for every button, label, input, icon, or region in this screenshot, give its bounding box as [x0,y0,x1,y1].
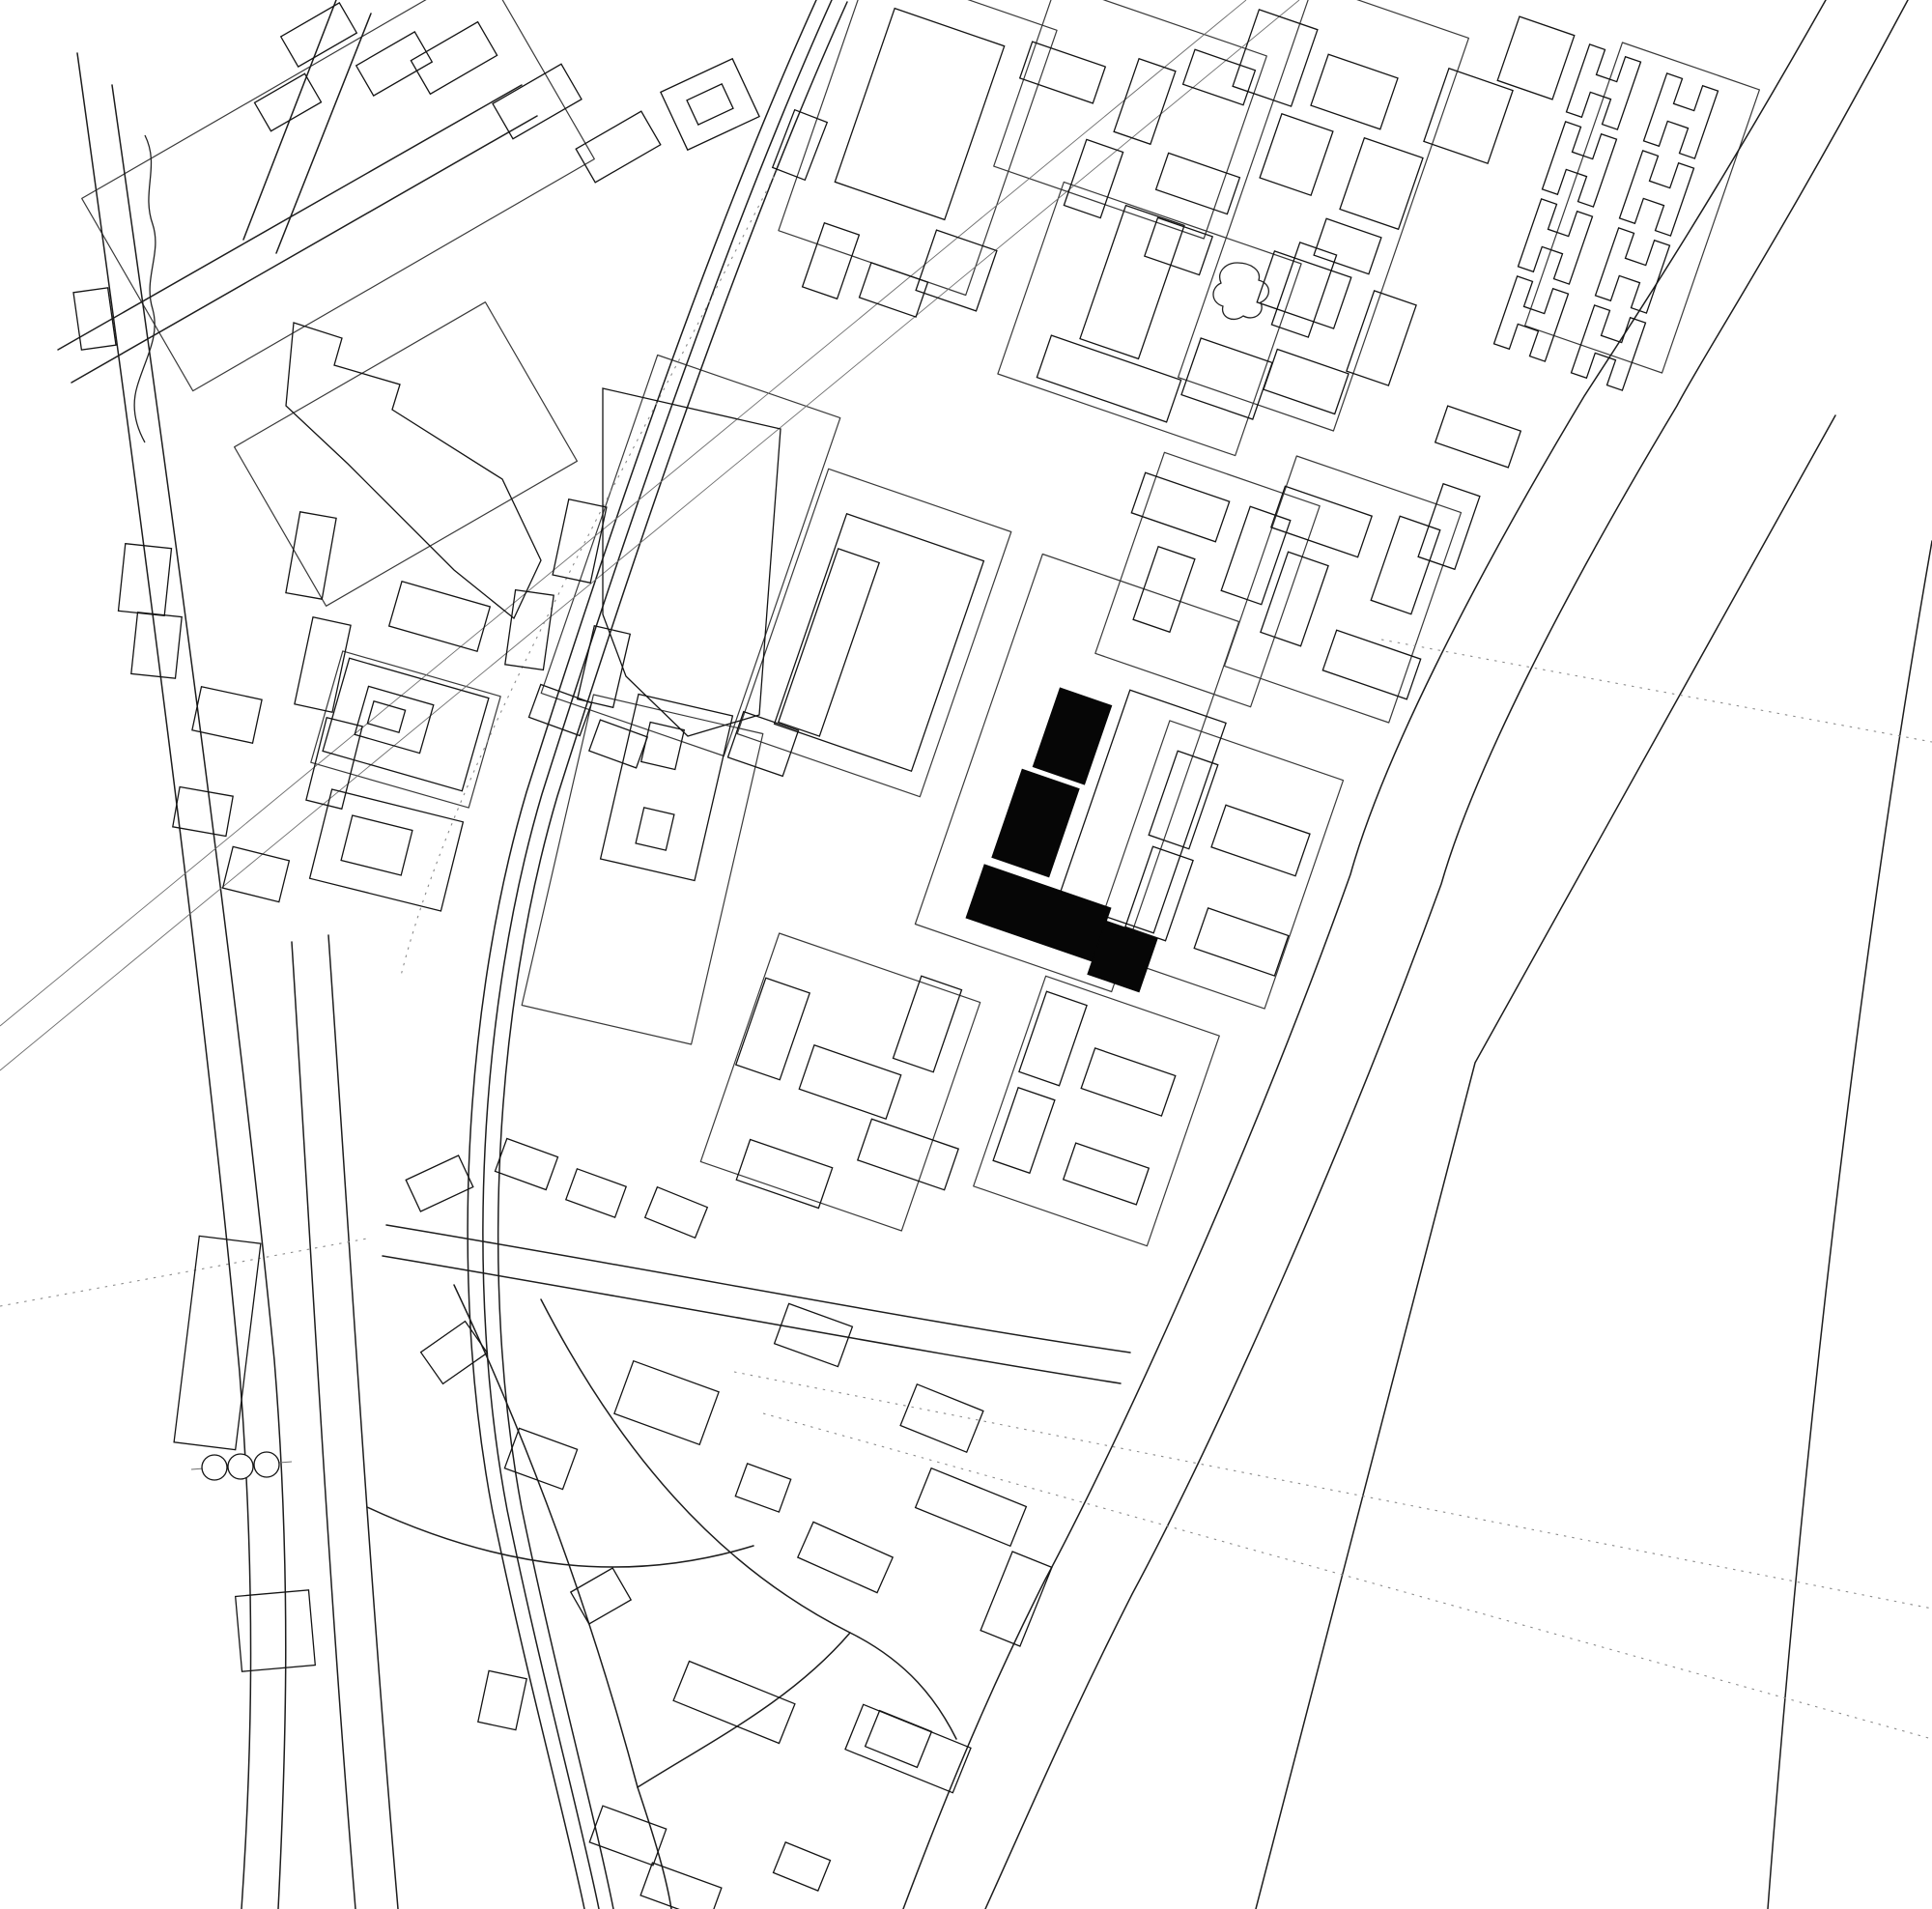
building [1133,547,1195,633]
building [1081,1048,1176,1116]
highlighted-building [992,770,1079,877]
building [735,1464,790,1512]
building [894,976,962,1071]
building [1064,139,1122,217]
building [673,1662,795,1744]
building [73,288,116,350]
park-path-3 [541,1299,956,1739]
building [223,846,290,901]
dotted-upper-right [1381,640,1932,742]
building [980,1552,1052,1646]
highlighted-building [1034,688,1112,784]
building [736,1140,832,1209]
building [1424,69,1513,163]
shoreline-wavy [134,135,156,442]
h-shaped-building [1494,276,1569,361]
building [131,613,182,678]
building [1020,42,1106,103]
gas-tank-circle [228,1454,253,1479]
avenue-west [903,0,1826,1909]
h-shaped-building [1620,151,1694,236]
building [835,9,1004,220]
corridor-line-2 [483,0,832,1909]
site-plan-map [0,0,1932,1909]
gas-tank-circle [202,1455,227,1480]
building [736,978,810,1079]
building [775,1303,853,1366]
h-shaped-building [1644,73,1719,158]
far-right-line [1768,541,1932,1909]
building [1371,516,1440,613]
building [1340,138,1423,230]
building [1347,291,1416,385]
building [640,1863,722,1909]
building [799,1045,900,1119]
building [255,73,322,130]
building [1322,630,1420,699]
building [1211,805,1310,875]
park-path-2 [367,1507,753,1567]
building [1019,991,1087,1086]
building-footprint-layer [73,3,1719,1909]
building [858,1119,958,1189]
building [192,687,262,743]
building [1181,338,1272,419]
building [496,1139,558,1190]
building [389,582,491,651]
dotted-mid-2 [763,1413,1932,1739]
building [566,1169,626,1217]
building [845,1704,971,1792]
building [236,1590,316,1671]
building [174,1236,261,1449]
building [589,1806,666,1866]
building [614,1361,719,1445]
building [774,1842,831,1891]
corridor-line-1 [468,0,816,1909]
building [286,512,336,599]
building [1435,406,1521,468]
h-shaped-building [1519,199,1593,284]
h-shaped-building [1567,44,1641,129]
building [281,3,357,67]
building [406,1155,473,1211]
street-sb-a [386,1225,1130,1353]
building [504,1428,577,1489]
gas-tank-layer [202,1452,279,1480]
pointed-hall [603,388,781,736]
h-shaped-building [1596,228,1670,313]
building [645,1187,708,1239]
street-sb-b [383,1256,1121,1383]
building [1156,153,1240,214]
building [1311,54,1398,129]
building [571,1568,631,1624]
building [411,22,497,95]
building [173,787,233,837]
building [900,1384,983,1452]
building [1260,114,1333,195]
building [1497,16,1575,100]
gas-tank-circle [254,1452,279,1477]
building [1264,350,1349,414]
building [798,1522,893,1592]
building [421,1322,488,1384]
building [1131,472,1229,542]
site-plan-page [0,0,1932,1909]
building [803,223,860,299]
building [493,64,582,138]
h-shaped-building [1543,122,1617,207]
building [119,544,172,616]
corridor-line-3 [498,2,847,1909]
building [916,1468,1027,1547]
building [916,230,997,311]
building [576,111,661,183]
building [1194,908,1289,976]
building [1064,1143,1150,1205]
embankment-road-east [328,935,398,1909]
embankment-road-west [292,942,355,1909]
building [478,1670,526,1729]
